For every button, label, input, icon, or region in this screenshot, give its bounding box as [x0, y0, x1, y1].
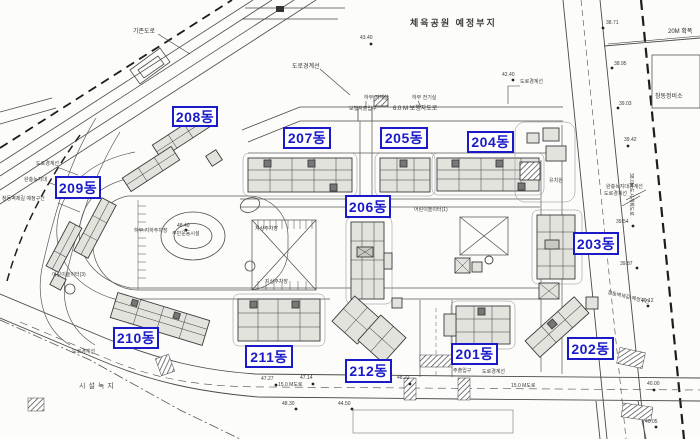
boundary-label: 도로경계선: [604, 192, 627, 197]
parking-areas: [138, 200, 508, 290]
elevation-value: 39.54: [616, 220, 629, 225]
elevation-value: 43.40: [360, 36, 373, 41]
surface-parking-label: 지상주차장: [255, 227, 278, 232]
south-road-label: 15.0 M도로: [278, 383, 303, 388]
building-label-209: 209동: [55, 176, 101, 199]
elevation-value: 38.71: [606, 21, 619, 26]
boundary-label: 도로경계선: [482, 370, 505, 375]
building-label-210: 210동: [113, 327, 159, 349]
exercise-area-label: 주민운동시설: [172, 232, 200, 237]
building-label-211: 211동: [245, 345, 293, 368]
building-label-208: 208동: [172, 106, 218, 127]
buffer-boundary-label: 완충녹지대경계선: [606, 185, 643, 190]
building-label-205: 205동: [380, 127, 428, 149]
building-label-212: 212동: [345, 359, 392, 383]
playground-label: 어린이놀이터(3): [52, 273, 86, 278]
elevation-value: 38.95: [614, 62, 627, 67]
boundary-label: 도로경계선: [292, 64, 320, 70]
buffer-green-label: 완충녹지대: [24, 178, 47, 183]
elevation-value: 47.14: [300, 376, 313, 381]
misc-structures: [455, 256, 493, 273]
apartment-site-plan: 208동 207동 205동 204동 209동 206동 203동 210동 …: [0, 0, 700, 439]
building-206: [346, 217, 392, 304]
elevation-value: 40.00: [647, 382, 660, 387]
building-label-204: 204동: [467, 131, 514, 153]
building-label-206: 206동: [345, 195, 391, 218]
building-label-207: 207동: [283, 127, 331, 149]
building-label-203: 203동: [573, 232, 619, 255]
underground-parking-label: 하부:지하주차장: [134, 229, 168, 234]
pedestrian-road-label: 6.0 M 보행자도로: [393, 106, 437, 112]
elevation-value: 39.42: [624, 138, 637, 143]
road-label-existing: 기존도로: [133, 29, 155, 35]
buildings: [46, 113, 598, 363]
pedestrian-entrance-label: 보행자출입구: [349, 107, 377, 112]
building-207: [243, 153, 357, 196]
elevation-value: 48.30: [282, 402, 295, 407]
elevation-value: 44.50: [338, 402, 351, 407]
planned-road-label: 창동벽제길 예정구간: [2, 197, 45, 202]
kindergarten-label: 유치원: [549, 179, 563, 184]
building-label-202: 202동: [567, 337, 614, 360]
building-201: [444, 301, 515, 349]
elevation-value: 48.22: [397, 376, 410, 381]
building-212: [332, 296, 406, 363]
main-entrance-label: 주출입구: [453, 369, 471, 374]
crosswalks: [28, 347, 653, 421]
boundary-label: 도로경계선: [36, 162, 59, 167]
elevation-value: 47.27: [261, 377, 274, 382]
playground-label: 어린이놀이터(1): [414, 208, 448, 213]
surface-parking-label: 지상주차장: [265, 280, 288, 285]
elevation-value: 39.03: [619, 102, 632, 107]
elevation-value: 40.05: [645, 420, 658, 425]
facility-green-label: 시설녹지: [79, 383, 117, 390]
elevation-value: 48.40: [177, 224, 190, 229]
facility-label-depot: 창동정비소: [655, 94, 683, 100]
building-205: [375, 153, 435, 196]
planned-city-road-label: 38.0M 도시계획도로: [628, 173, 633, 216]
elevation-value: 39.87: [620, 262, 633, 267]
elevation-value: 42.40: [502, 73, 515, 78]
building-label-201: 201동: [451, 343, 498, 365]
boundary-label: 도로경계선: [520, 80, 543, 85]
arterial-road-east: [563, 0, 700, 439]
boundary-label: 도로경계선: [72, 350, 95, 355]
south-road-label: 15.0 M도로: [511, 384, 536, 389]
elevation-value: 40.12: [641, 299, 654, 304]
area-label-sports-park: 체육공원 예정부지: [410, 19, 497, 28]
note-machine-room: 하부 기계실: [364, 96, 388, 101]
note-electric-room: 하부 전기실: [412, 96, 436, 101]
building-211: [233, 294, 325, 346]
road-widening-label: 20M 확폭: [668, 29, 692, 35]
